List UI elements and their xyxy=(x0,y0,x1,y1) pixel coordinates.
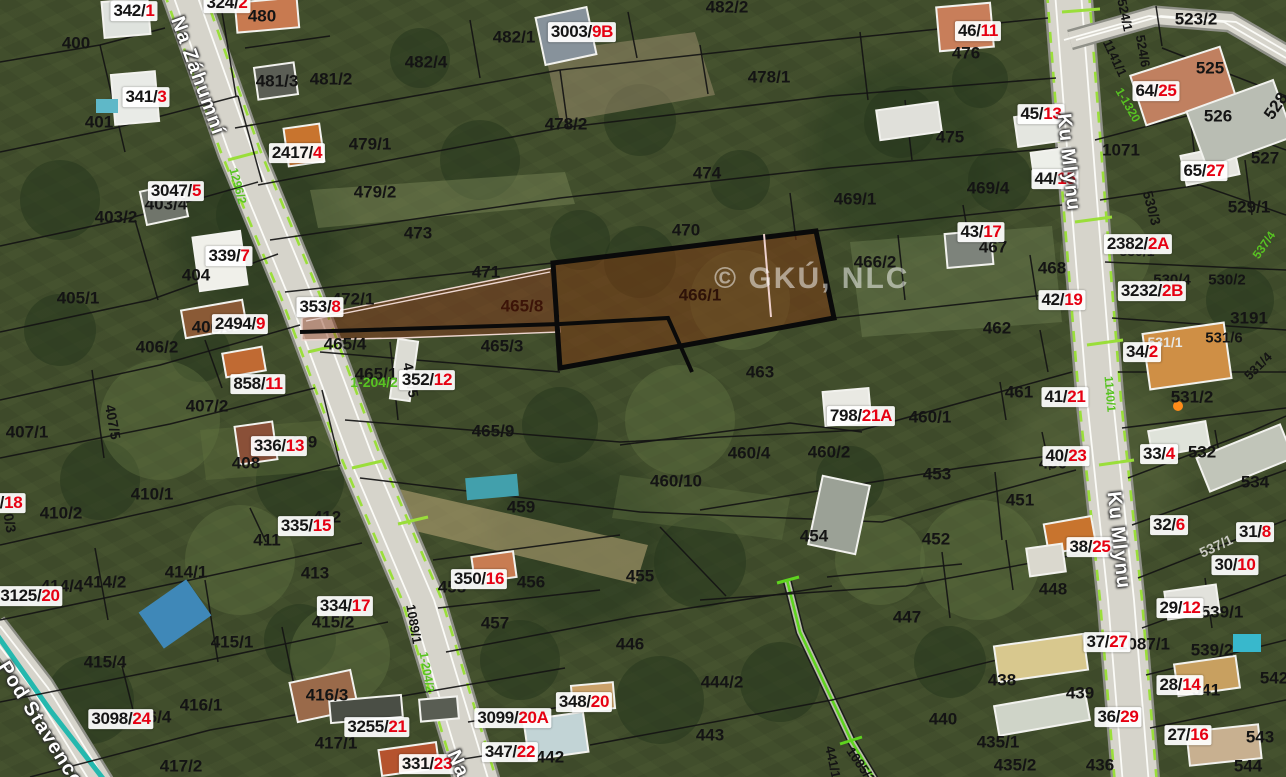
address-label-342-1: 342/1 xyxy=(110,1,157,21)
address-label-red-part: 19 xyxy=(1064,290,1082,309)
street-name-ku-mlynu: Ku Mlynu xyxy=(1102,490,1135,590)
parcel-number-442: 442 xyxy=(536,749,564,766)
parcel-number-435-2: 435/2 xyxy=(994,757,1037,774)
address-label-2417-4: 2417/4 xyxy=(269,143,325,163)
address-label-black-part: 331/ xyxy=(402,754,434,773)
parcel-number-401: 401 xyxy=(85,114,113,131)
address-label-red-part: 21 xyxy=(388,717,406,736)
parcel-number-415-1: 415/1 xyxy=(211,634,254,651)
address-label-red-part: 13 xyxy=(286,436,304,455)
address-label-3255-21: 3255/21 xyxy=(344,717,409,737)
address-label-black-part: 29/ xyxy=(1159,598,1182,617)
address-label-black-part: 798/ xyxy=(830,406,862,425)
parcel-number-1089-1: 1089/1 xyxy=(404,603,424,644)
parcel-number-544: 544 xyxy=(1234,758,1262,775)
address-label-black-part: 43/ xyxy=(960,222,983,241)
parcel-number-435-1: 435/1 xyxy=(977,734,1020,751)
address-label-40-23: 40/23 xyxy=(1042,446,1089,466)
parcel-number-537-4: 537/4 xyxy=(1250,229,1277,260)
address-label-red-part: 1 xyxy=(145,1,154,20)
address-label-red-part: 12 xyxy=(1182,598,1200,617)
address-label-28-14: 28/14 xyxy=(1156,675,1203,695)
address-label-339-7: 339/7 xyxy=(205,246,252,266)
address-label-black-part: 2382/ xyxy=(1107,234,1148,253)
parcel-number-460-1: 460/1 xyxy=(909,409,952,426)
address-label-red-part: 8 xyxy=(1262,522,1271,541)
parcel-number-465-9: 465/9 xyxy=(472,423,515,440)
address-label-black-part: 341/ xyxy=(125,87,157,106)
parcel-number-438: 438 xyxy=(988,672,1016,689)
parcel-number-543: 543 xyxy=(1246,729,1274,746)
address-label-red-part: 16 xyxy=(486,569,504,588)
address-label-33-4: 33/4 xyxy=(1140,444,1178,464)
address-label-65-27: 65/27 xyxy=(1180,161,1227,181)
parcel-number-452: 452 xyxy=(922,531,950,548)
parcel-number-1141-1: 1141/1 xyxy=(1101,38,1129,79)
address-label-red-part: 24 xyxy=(132,709,150,728)
parcel-number-469-4: 469/4 xyxy=(967,180,1010,197)
address-label-black-part: 65/ xyxy=(1183,161,1206,180)
address-label-black-part: 350/ xyxy=(454,569,486,588)
address-label-black-part: 3255/ xyxy=(347,717,388,736)
address-label-36-29: 36/29 xyxy=(1094,707,1141,727)
parcel-number-411: 411 xyxy=(253,532,280,549)
parcel-number-1296-2: 1296/2 xyxy=(227,167,248,206)
parcel-number-465-8: 465/8 xyxy=(501,298,544,315)
address-label-black-part: 3098/ xyxy=(91,709,132,728)
address-label-37-27: 37/27 xyxy=(1083,632,1130,652)
parcel-number-453: 453 xyxy=(923,466,951,483)
parcel-number-525: 525 xyxy=(1196,60,1224,77)
address-label-black-part: 44/ xyxy=(1034,169,1057,188)
address-label-red-part: 4 xyxy=(313,143,322,162)
parcel-number-475: 475 xyxy=(936,129,964,146)
parcel-number-1-204-2: 1-204/2 xyxy=(418,651,437,693)
address-label-3098-24: 3098/24 xyxy=(88,709,153,729)
address-label-43-17: 43/17 xyxy=(957,222,1004,242)
parcel-number-440: 440 xyxy=(929,711,957,728)
address-label-black-part: 32/ xyxy=(1153,515,1176,534)
address-label-black-part: 30/ xyxy=(1214,555,1237,574)
parcel-number-478-1: 478/1 xyxy=(748,69,791,86)
parcel-number-416-1: 416/1 xyxy=(180,697,223,714)
copyright-watermark: © GKÚ, NLC xyxy=(714,262,909,296)
address-label-black-part: 40/ xyxy=(1045,446,1068,465)
parcel-number-460-10: 460/10 xyxy=(650,473,702,490)
parcel-number-469-1: 469/1 xyxy=(834,191,877,208)
address-label-black-part: 334/ xyxy=(320,596,352,615)
address-label-29-12: 29/12 xyxy=(1156,598,1203,618)
address-label-3003-9B: 3003/9B xyxy=(548,22,616,42)
address-label-353-8: 353/8 xyxy=(296,297,343,317)
address-label-347-22: 347/22 xyxy=(482,742,538,762)
parcel-number-457: 457 xyxy=(481,615,509,632)
address-label-red-part: 20A xyxy=(518,708,548,727)
parcel-number-459: 459 xyxy=(507,499,535,516)
address-label-black-part: 37/ xyxy=(1086,632,1109,651)
parcel-number-468: 468 xyxy=(1038,260,1066,277)
parcel-number-461: 461 xyxy=(1005,384,1033,401)
parcel-number-444-2: 444/2 xyxy=(701,674,744,691)
address-label-336-13: 336/13 xyxy=(251,436,307,456)
address-label-3099-20A: 3099/20A xyxy=(474,708,551,728)
address-label-red-part: 7 xyxy=(240,246,249,265)
address-label-335-15: 335/15 xyxy=(278,516,334,536)
address-label-red-part: 16 xyxy=(1190,725,1208,744)
address-label-red-part: 29 xyxy=(1120,707,1138,726)
parcel-number-451: 451 xyxy=(1006,492,1034,509)
street-name-pod-stavencom: Pod Stavencom xyxy=(0,657,98,777)
parcel-number-470: 470 xyxy=(672,222,700,239)
parcel-number-481-3: 481/3 xyxy=(256,73,299,90)
parcel-number-463: 463 xyxy=(746,364,774,381)
parcel-number-3191: 3191 xyxy=(1230,310,1268,327)
address-label-red-part: 2 xyxy=(238,0,247,12)
map-canvas[interactable]: 400401403/2403/4404405/1406/3406/2407/14… xyxy=(0,0,1286,777)
parcel-number-417-2: 417/2 xyxy=(160,758,203,775)
parcel-number-413: 413 xyxy=(301,565,329,582)
parcel-number-474: 474 xyxy=(693,165,721,182)
parcel-number-417-1: 417/1 xyxy=(315,735,358,752)
parcel-number-476: 476 xyxy=(952,45,980,62)
address-label-black-part: 3047/ xyxy=(151,181,192,200)
parcel-number-447: 447 xyxy=(893,609,921,626)
parcel-number-524-1: 524/1 xyxy=(1115,0,1134,32)
address-label-red-part: 15 xyxy=(313,516,331,535)
address-label-black-part: 34/ xyxy=(1126,342,1149,361)
address-label-2494-9: 2494/9 xyxy=(212,314,268,334)
address-label-3125-20: 3125/20 xyxy=(0,586,63,606)
parcel-number-479-2: 479/2 xyxy=(354,184,397,201)
parcel-number-528: 528 xyxy=(1261,90,1286,123)
address-label-red-part: 20 xyxy=(591,692,609,711)
parcel-number-530-3: 530/3 xyxy=(1141,189,1164,226)
address-label-34-2: 34/2 xyxy=(1123,342,1161,362)
parcel-number-415-2: 415/2 xyxy=(312,614,355,631)
parcel-number-529-1: 529/1 xyxy=(1228,199,1271,216)
address-label-31-8: 31/8 xyxy=(1236,522,1274,542)
address-label-334-17: 334/17 xyxy=(317,596,373,616)
parcel-number-407-5: 407/5 xyxy=(103,404,123,441)
parcel-number-0-3: 0/3 xyxy=(1,512,18,534)
parcel-number-481-2: 481/2 xyxy=(310,71,353,88)
parcel-number-524-6: 524/6 xyxy=(1134,34,1152,68)
parcel-number-443: 443 xyxy=(696,727,724,744)
parcel-number-531-4: 531/4 xyxy=(1242,350,1274,382)
parcel-number-527: 527 xyxy=(1251,150,1279,167)
address-label-black-part: 335/ xyxy=(281,516,313,535)
parcel-number-415-4: 415/4 xyxy=(84,654,127,671)
parcel-number-542: 542 xyxy=(1260,670,1286,687)
parcel-number-1085-1: 1085/1 xyxy=(844,745,877,777)
address-label-red-part: 11 xyxy=(981,21,998,40)
parcel-number-446: 446 xyxy=(616,636,644,653)
address-label-red-part: 9 xyxy=(256,314,265,333)
parcel-number-405-1: 405/1 xyxy=(57,290,100,307)
address-label-black-part: 336/ xyxy=(254,436,286,455)
parcel-number-436: 436 xyxy=(1086,757,1114,774)
parcel-number-539-1: 539/1 xyxy=(1201,604,1244,621)
street-name-ku-mlynu: Ku Mlynu xyxy=(1052,112,1085,212)
parcel-number-460-4: 460/4 xyxy=(728,445,771,462)
address-label-black-part: 33/ xyxy=(1143,444,1166,463)
parcel-number-530-2: 530/2 xyxy=(1208,273,1246,288)
address-label-352-12: 352/12 xyxy=(399,370,455,390)
address-label-2382-2A: 2382/2A xyxy=(1104,234,1172,254)
parcel-number-526: 526 xyxy=(1204,108,1232,125)
parcel-number-410-2: 410/2 xyxy=(40,505,83,522)
address-label-black-part: 3232/ xyxy=(1121,281,1162,300)
address-label--18: /18 xyxy=(0,493,25,513)
parcel-number-416-3: 416/3 xyxy=(306,687,349,704)
address-label-black-part: 31/ xyxy=(1239,522,1262,541)
address-label-black-part: 36/ xyxy=(1097,707,1120,726)
address-label-64-25: 64/25 xyxy=(1132,81,1179,101)
parcel-number-539-2: 539/2 xyxy=(1191,642,1234,659)
address-label-3047-5: 3047/5 xyxy=(148,181,204,201)
address-label-3232-2B: 3232/2B xyxy=(1118,281,1186,301)
address-label-red-part: 22 xyxy=(517,742,535,761)
label-layer: 400401403/2403/4404405/1406/3406/2407/14… xyxy=(0,0,1286,777)
address-label-red-part: 18 xyxy=(4,493,22,512)
street-name-na-z-humn-: Na Záhumní xyxy=(165,14,229,139)
parcel-number-465-3: 465/3 xyxy=(481,338,524,355)
parcel-number-400: 400 xyxy=(62,35,90,52)
address-label-red-part: 4 xyxy=(1166,444,1175,463)
parcel-number-448: 448 xyxy=(1039,581,1067,598)
address-label-black-part: 3003/ xyxy=(551,22,592,41)
parcel-number-460-2: 460/2 xyxy=(808,444,851,461)
parcel-number-473: 473 xyxy=(404,225,432,242)
parcel-number-1071: 1071 xyxy=(1102,142,1140,159)
address-label-46-11: 46/11 xyxy=(955,21,1001,41)
address-label-red-part: 11 xyxy=(265,374,282,393)
parcel-number-480: 480 xyxy=(248,8,276,25)
address-label-41-21: 41/21 xyxy=(1041,387,1088,407)
parcel-number-441-1: 441/1 xyxy=(823,745,842,777)
address-label-324-2: 324/2 xyxy=(203,0,250,13)
parcel-number-1140-1: 1140/1 xyxy=(1102,376,1117,413)
address-label-red-part: 10 xyxy=(1237,555,1255,574)
parcel-number-404: 404 xyxy=(182,267,210,284)
address-label-red-part: 2 xyxy=(1149,342,1158,361)
address-label-red-part: 3 xyxy=(157,87,166,106)
address-label-black-part: 42/ xyxy=(1041,290,1064,309)
address-label-red-part: 27 xyxy=(1206,161,1224,180)
address-label-black-part: 38/ xyxy=(1069,537,1092,556)
address-label-black-part: 45/ xyxy=(1020,104,1043,123)
address-label-red-part: 6 xyxy=(1176,515,1185,534)
address-label-red-part: 20 xyxy=(41,586,59,605)
address-label-black-part: 2494/ xyxy=(215,314,256,333)
address-label-32-6: 32/6 xyxy=(1150,515,1188,535)
address-label-red-part: 23 xyxy=(1068,446,1086,465)
parcel-number-1-204-2: 1-204/2 xyxy=(350,375,397,389)
address-label-red-part: 21 xyxy=(1067,387,1085,406)
address-label-red-part: 5 xyxy=(192,181,201,200)
parcel-number-456: 456 xyxy=(517,574,545,591)
address-label-42-19: 42/19 xyxy=(1038,290,1085,310)
address-label-red-part: 2A xyxy=(1148,234,1169,253)
address-label-348-20: 348/20 xyxy=(556,692,612,712)
address-label-black-part: 64/ xyxy=(1135,81,1158,100)
address-label-black-part: 324/ xyxy=(206,0,238,12)
parcel-number-532: 532 xyxy=(1188,444,1216,461)
parcel-number-454: 454 xyxy=(800,528,828,545)
parcel-number-414-1: 414/1 xyxy=(165,564,208,581)
address-label-black-part: 3125/ xyxy=(0,586,41,605)
parcel-number-414-2: 414/2 xyxy=(84,574,127,591)
address-label-798-21A: 798/21A xyxy=(827,406,895,426)
parcel-number-534: 534 xyxy=(1241,474,1269,491)
address-label-341-3: 341/3 xyxy=(122,87,169,107)
address-label-red-part: 25 xyxy=(1158,81,1176,100)
address-label-red-part: 8 xyxy=(331,297,340,316)
address-label-858-11: 858/11 xyxy=(230,374,285,394)
address-label-red-part: 9B xyxy=(592,22,613,41)
parcel-number-482-2: 482/2 xyxy=(706,0,749,16)
address-label-black-part: 352/ xyxy=(402,370,434,389)
address-label-30-10: 30/10 xyxy=(1211,555,1258,575)
address-label-black-part: 28/ xyxy=(1159,675,1182,694)
address-label-black-part: 41/ xyxy=(1044,387,1067,406)
address-label-red-part: 14 xyxy=(1182,675,1200,694)
address-label-red-part: 17 xyxy=(983,222,1001,241)
parcel-number-531-2: 531/2 xyxy=(1171,389,1214,406)
address-label-27-16: 27/16 xyxy=(1164,725,1211,745)
address-label-red-part: 17 xyxy=(352,596,370,615)
address-label-black-part: 46/ xyxy=(958,21,981,40)
address-label-black-part: 339/ xyxy=(208,246,240,265)
parcel-number-403-2: 403/2 xyxy=(95,209,138,226)
parcel-number-479-1: 479/1 xyxy=(349,136,392,153)
address-label-black-part: 353/ xyxy=(299,297,331,316)
address-label-red-part: 2B xyxy=(1162,281,1183,300)
parcel-number-523-2: 523/2 xyxy=(1175,11,1218,28)
address-label-black-part: 27/ xyxy=(1167,725,1190,744)
parcel-number-408: 408 xyxy=(232,455,260,472)
parcel-number-407-1: 407/1 xyxy=(6,424,49,441)
parcel-number-439: 439 xyxy=(1066,685,1094,702)
parcel-number-455: 455 xyxy=(626,568,654,585)
parcel-number-462: 462 xyxy=(983,320,1011,337)
address-label-red-part: 27 xyxy=(1109,632,1127,651)
address-label-black-part: 858/ xyxy=(233,374,265,393)
address-label-black-part: 3099/ xyxy=(477,708,518,727)
parcel-number-471: 471 xyxy=(472,264,500,281)
parcel-number-482-1: 482/1 xyxy=(493,29,536,46)
parcel-number-465-4: 465/4 xyxy=(324,336,367,353)
parcel-number-410-1: 410/1 xyxy=(131,486,174,503)
parcel-number-482-4: 482/4 xyxy=(405,54,448,71)
address-label-350-16: 350/16 xyxy=(451,569,507,589)
parcel-number-407-2: 407/2 xyxy=(186,398,229,415)
address-label-black-part: 348/ xyxy=(559,692,591,711)
address-label-black-part: 347/ xyxy=(485,742,517,761)
parcel-number-406-2: 406/2 xyxy=(136,339,179,356)
address-label-black-part: 342/ xyxy=(113,1,145,20)
parcel-number-478-2: 478/2 xyxy=(545,116,588,133)
address-label-red-part: 21A xyxy=(862,406,892,425)
parcel-number-531-6: 531/6 xyxy=(1205,331,1243,346)
address-label-black-part: 2417/ xyxy=(272,143,313,162)
address-label-red-part: 12 xyxy=(434,370,452,389)
